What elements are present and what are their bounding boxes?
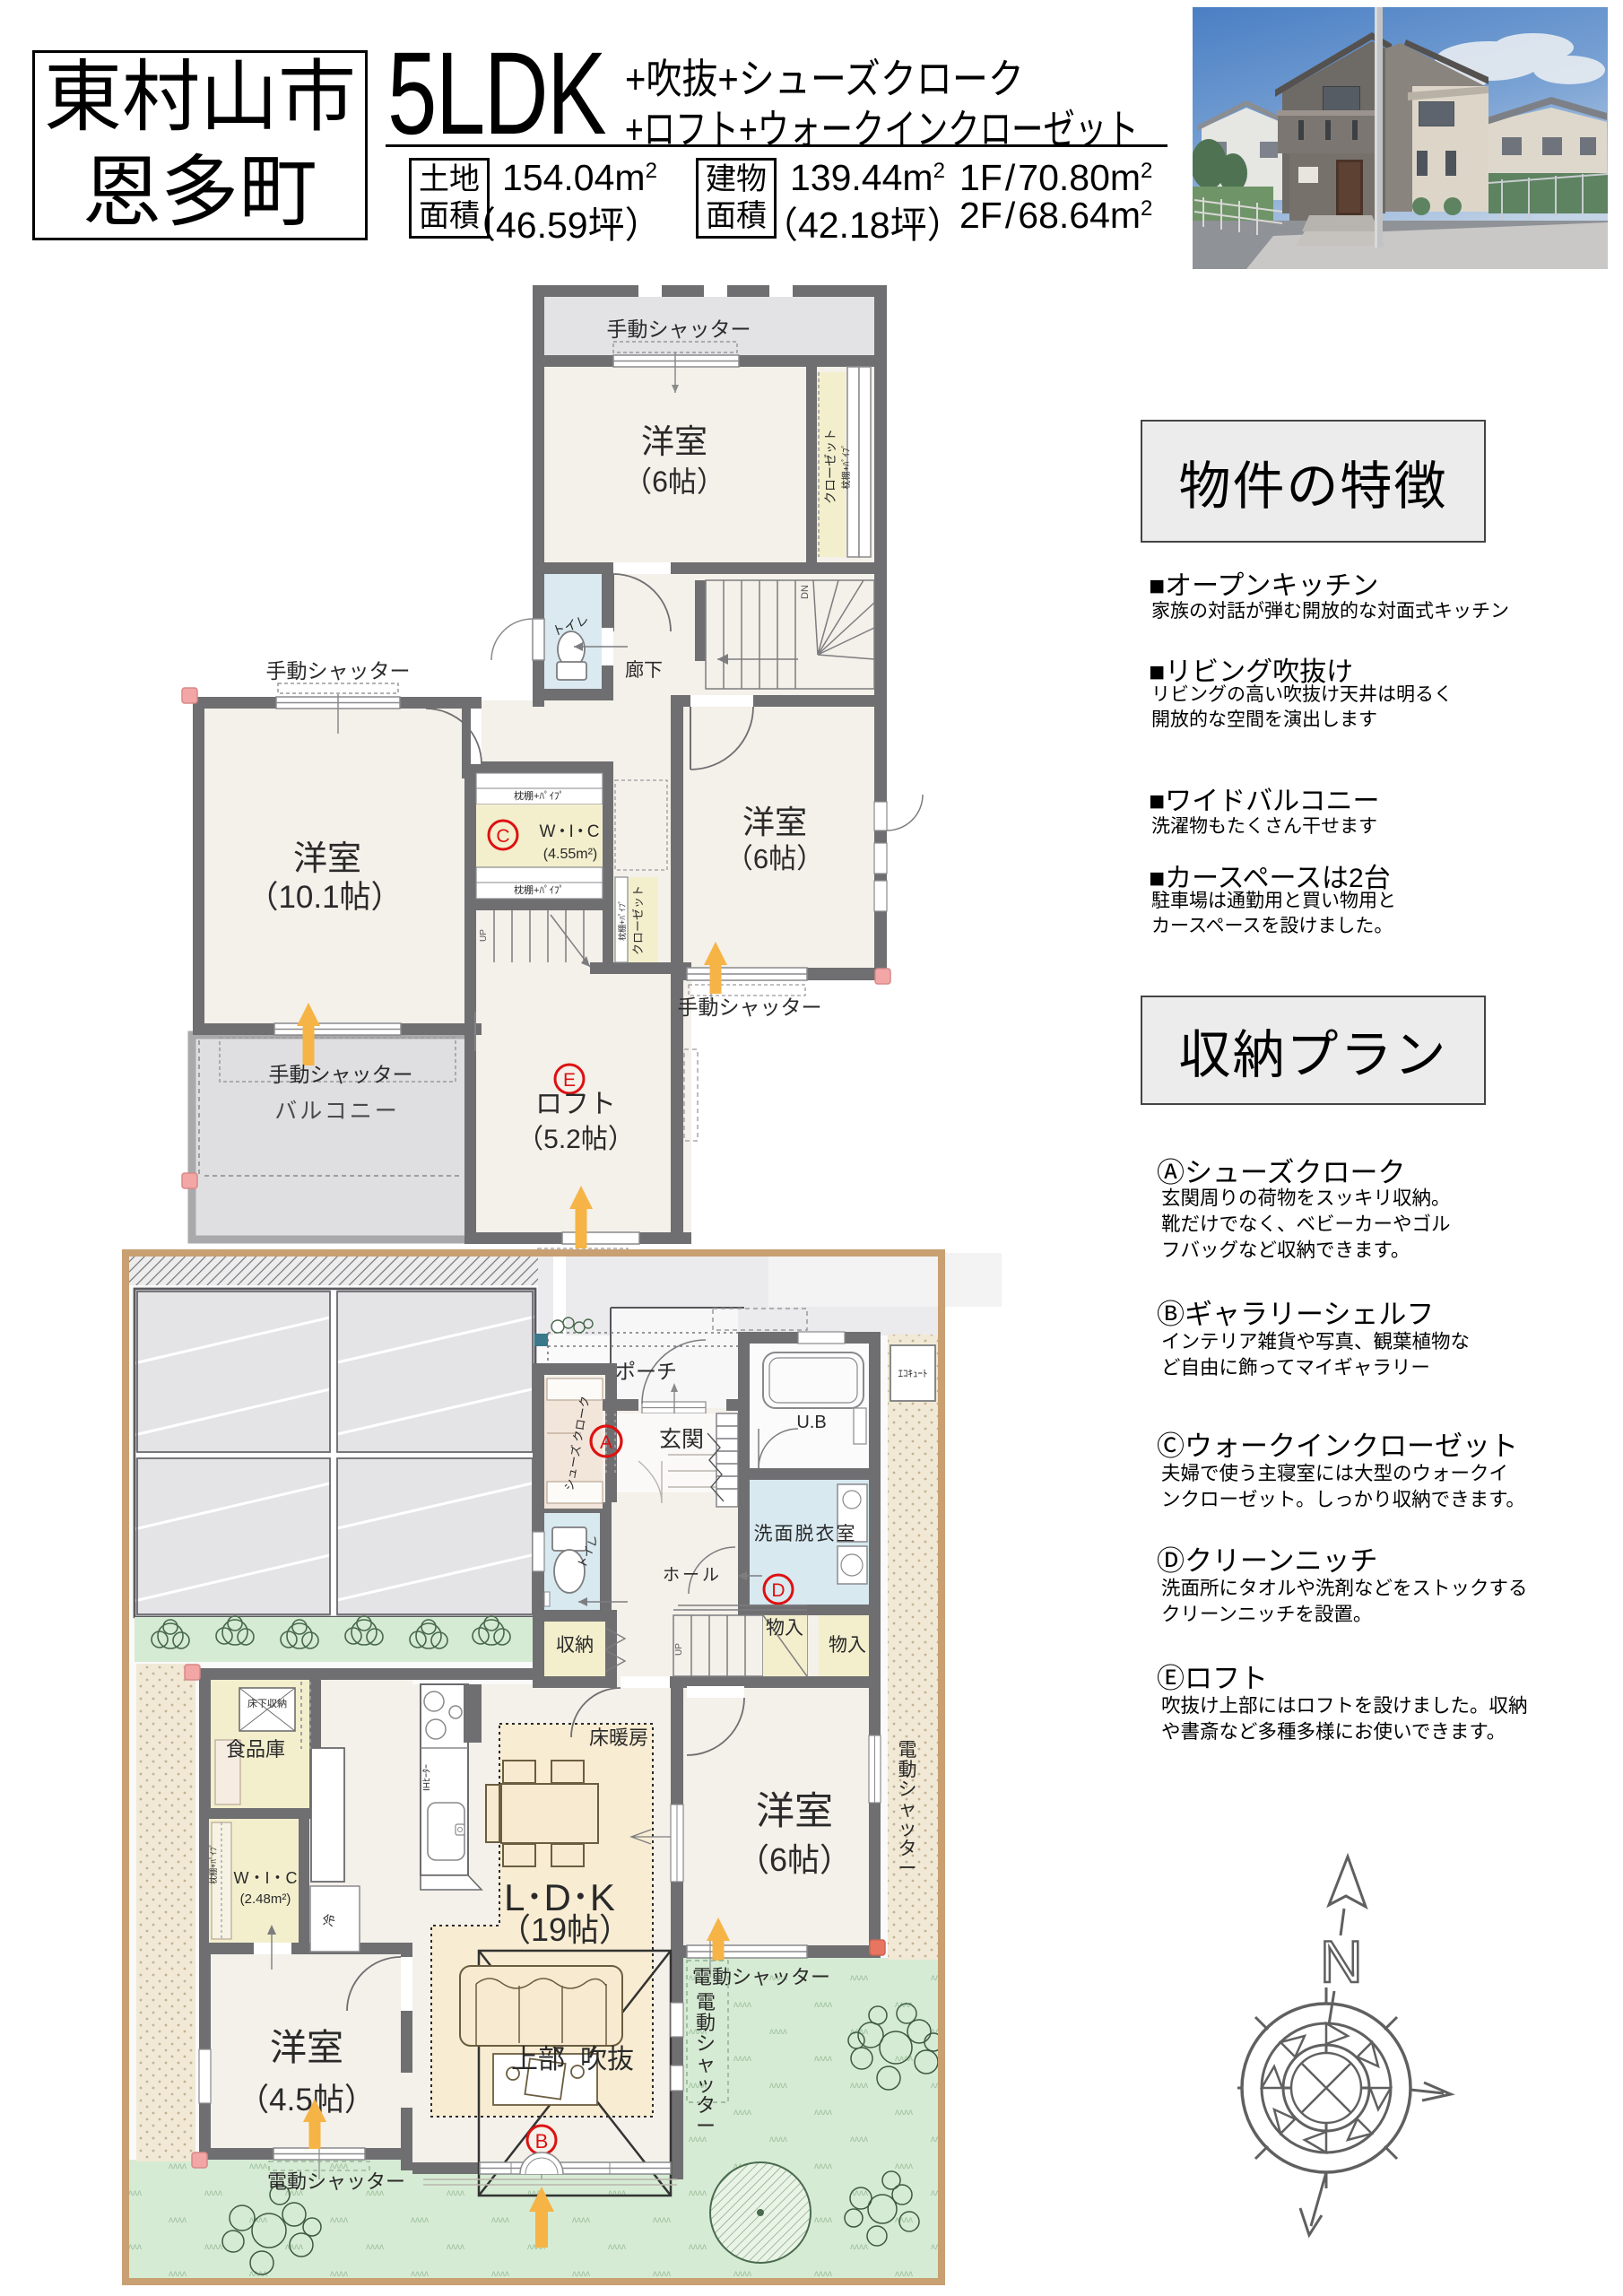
svg-text:(2.48m²): (2.48m²) — [240, 1892, 291, 1907]
svg-text:上部: 上部 — [511, 2045, 565, 2074]
svg-text:ホール: ホール — [663, 1566, 722, 1585]
svg-text:（19帖）: （19帖） — [499, 1911, 631, 1948]
svg-text:床下収納: 床下収納 — [247, 1697, 287, 1709]
svg-text:電動シャッター: 電動シャッター — [696, 1991, 716, 2137]
svg-text:物入: 物入 — [766, 1618, 803, 1639]
svg-text:食品庫: 食品庫 — [226, 1738, 285, 1761]
svg-text:冷: 冷 — [321, 1913, 337, 1928]
svg-text:UP: UP — [674, 1643, 684, 1656]
svg-text:吹抜: 吹抜 — [580, 2045, 634, 2074]
svg-text:収納: 収納 — [556, 1635, 594, 1656]
svg-text:電動シャッター: 電動シャッター — [692, 1966, 830, 1988]
svg-text:物入: 物入 — [829, 1635, 866, 1656]
svg-text:枕棚+ﾊﾟｲﾌﾟ: 枕棚+ﾊﾟｲﾌﾟ — [208, 1843, 218, 1884]
svg-text:洋室: 洋室 — [756, 1790, 833, 1833]
svg-text:電動シャッター: 電動シャッター — [267, 2170, 405, 2193]
svg-text:U.B: U.B — [796, 1413, 826, 1432]
svg-text:洗面脱衣室: 洗面脱衣室 — [754, 1524, 857, 1544]
svg-text:床暖房: 床暖房 — [589, 1726, 648, 1749]
svg-text:N: N — [1320, 1928, 1363, 1995]
svg-text:IHﾋｰﾀｰ: IHﾋｰﾀｰ — [421, 1764, 432, 1791]
svg-text:D: D — [771, 1580, 785, 1601]
svg-text:（4.5帖）: （4.5帖） — [238, 2083, 376, 2118]
svg-text:ポーチ: ポーチ — [615, 1360, 677, 1383]
svg-text:A: A — [600, 1432, 612, 1453]
svg-text:玄関: 玄関 — [659, 1427, 704, 1452]
svg-text:（6帖）: （6帖） — [737, 1841, 852, 1878]
svg-text:ｴｺｷｭｰﾄ: ｴｺｷｭｰﾄ — [898, 1369, 928, 1379]
svg-text:電動シャッター: 電動シャッター — [898, 1740, 917, 1879]
svg-text:B: B — [535, 2130, 549, 2152]
svg-text:洋室: 洋室 — [270, 2027, 343, 2068]
svg-text:W・I・C: W・I・C — [234, 1869, 298, 1887]
